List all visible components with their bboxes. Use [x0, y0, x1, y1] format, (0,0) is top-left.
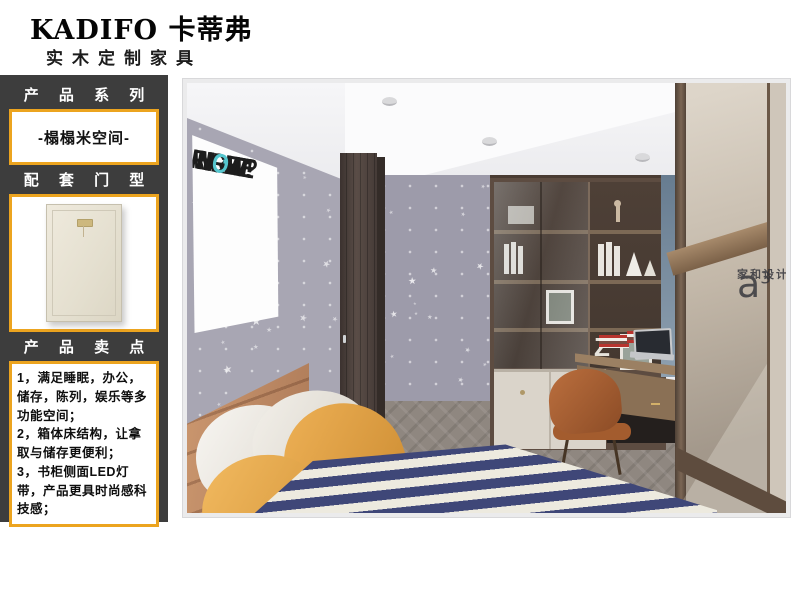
wallpaper-star: ★	[475, 261, 486, 272]
cone-decor	[626, 252, 642, 276]
wallpaper-star: ★	[297, 313, 307, 324]
product-sidebar: 产 品 系 列 -榻榻米空间- 配 套 门 型 产 品 卖 点 1，满足睡眠，办…	[0, 75, 168, 522]
cabinet-knob	[520, 390, 525, 395]
wallpaper-star: ★	[329, 316, 338, 325]
wallpaper-star: ★	[427, 314, 433, 321]
series-value: -榻榻米空间-	[38, 127, 130, 148]
door-handle-ring	[83, 226, 84, 237]
selling-section-title: 产 品 卖 点	[9, 332, 159, 361]
door-handle-plate	[77, 219, 93, 227]
wallpaper-star: ★	[414, 312, 418, 317]
downlight	[635, 153, 650, 162]
door-handle	[343, 335, 346, 343]
white-book	[606, 242, 612, 276]
selling-points-box: 1，满足睡眠，办公，储存，陈列，娱乐等多功能空间； 2，箱体床结构，让拿取与储存…	[9, 361, 159, 527]
wallpaper-star: ★	[408, 277, 417, 287]
wallpaper-star: ★	[429, 267, 437, 276]
wallpaper-star: ★	[220, 340, 226, 347]
figurine-head	[614, 200, 621, 207]
bedroom-scene: ★★★★★★★★★★★★★★★★★★★★★★★★★★ ★★★★★★★★★★★★★…	[187, 83, 786, 513]
wallpaper-star: ★	[390, 354, 395, 360]
selling-point: 2，箱体床结构，让拿取与储存更便利；	[17, 425, 151, 463]
wallpaper-star: ★	[413, 302, 417, 306]
book-stack	[599, 335, 629, 348]
brand-logo: KADIFO 卡蒂弗	[30, 8, 252, 47]
wallpaper-star: ★	[253, 345, 259, 352]
wallpaper-star: ★	[321, 259, 332, 271]
bedroom-photo: ★★★★★★★★★★★★★★★★★★★★★★★★★★ ★★★★★★★★★★★★★…	[183, 79, 790, 517]
door-image-box	[9, 194, 159, 332]
figurine	[616, 206, 620, 222]
white-book	[614, 246, 620, 276]
downlight	[482, 137, 497, 146]
wallpaper-star: ★	[389, 210, 395, 216]
wallpaper-star: ★	[463, 347, 471, 356]
brand-subtitle: 实木定制家具	[46, 44, 202, 69]
wallpaper-star: ★	[479, 185, 486, 192]
cone-decor	[644, 260, 656, 276]
downlight	[382, 97, 397, 106]
watermark-name: 家和设计	[737, 266, 786, 282]
wallpaper-star: ★	[459, 212, 466, 219]
wallpaper-star: ★	[222, 364, 234, 377]
wallpaper-star: ★	[324, 208, 331, 216]
door-panel-graphic	[46, 204, 122, 322]
wardrobe-right-panel	[770, 83, 786, 513]
wallpaper-star: ★	[301, 176, 307, 182]
selling-point: 1，满足睡眠，办公，储存，陈列，娱乐等多功能空间；	[17, 369, 151, 425]
wallpaper-star: ★	[481, 362, 487, 369]
selling-point: 3，书柜侧面LED灯带，产品更具时尚感科技感；	[17, 463, 151, 519]
door-section-title: 配 套 门 型	[9, 165, 159, 194]
series-value-box: -榻榻米空间-	[9, 109, 159, 165]
wallpaper-star: ★	[265, 328, 271, 335]
wallpaper-star: ★	[457, 377, 465, 385]
door-frame	[377, 157, 385, 445]
series-section-title: 产 品 系 列	[9, 80, 159, 109]
drawer-handle	[651, 403, 660, 405]
wallpaper-star: ★	[390, 309, 399, 319]
white-book	[598, 244, 604, 276]
